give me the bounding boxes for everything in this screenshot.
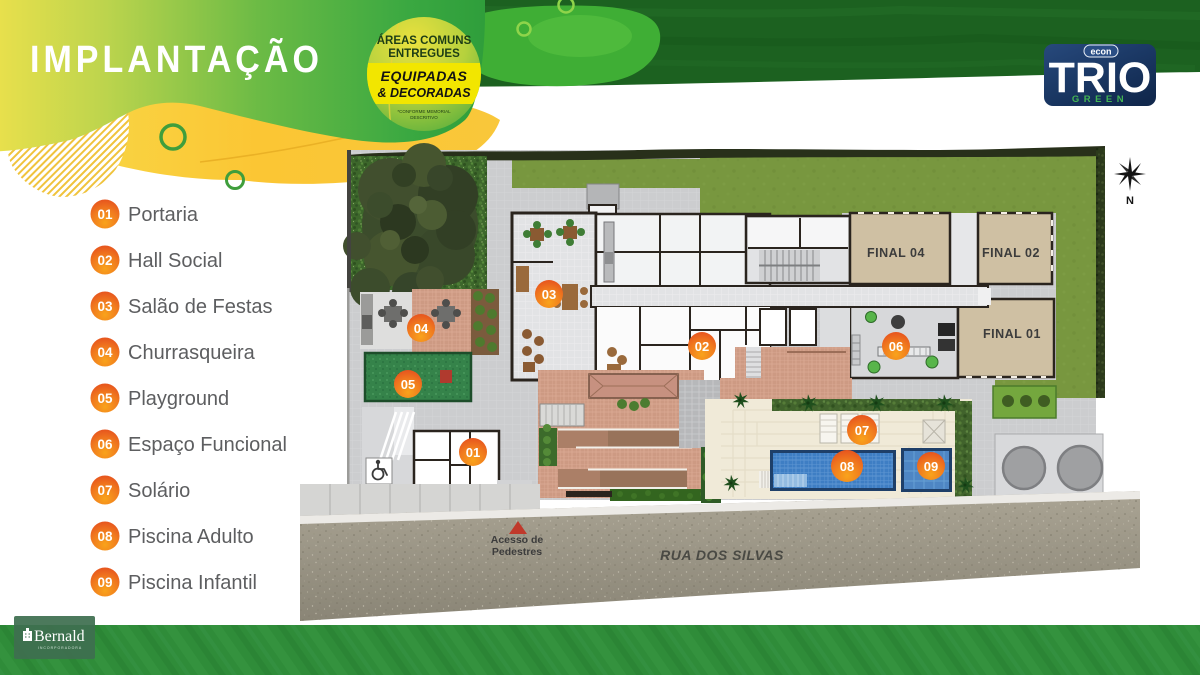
- svg-text:Piscina Infantil: Piscina Infantil: [128, 572, 257, 594]
- svg-text:04: 04: [414, 321, 429, 336]
- svg-text:03: 03: [542, 287, 556, 302]
- svg-text:09: 09: [924, 459, 938, 474]
- svg-text:05: 05: [97, 391, 113, 406]
- svg-text:Hall Social: Hall Social: [128, 250, 222, 272]
- svg-text:FINAL 02: FINAL 02: [982, 246, 1040, 260]
- svg-text:RUA DOS SILVAS: RUA DOS SILVAS: [660, 547, 784, 563]
- svg-text:& DECORADAS: & DECORADAS: [377, 86, 471, 100]
- svg-text:01: 01: [97, 207, 113, 222]
- svg-text:08: 08: [97, 529, 113, 544]
- svg-text:02: 02: [97, 253, 112, 268]
- svg-text:Playground: Playground: [128, 388, 229, 410]
- svg-text:01: 01: [466, 445, 480, 460]
- svg-text:N: N: [1126, 195, 1134, 207]
- svg-text:Solário: Solário: [128, 480, 190, 502]
- svg-text:07: 07: [97, 483, 112, 498]
- svg-text:Churrasqueira: Churrasqueira: [128, 342, 256, 364]
- svg-text:FINAL 04: FINAL 04: [867, 246, 925, 260]
- svg-text:Bernald: Bernald: [34, 628, 85, 645]
- svg-text:06: 06: [889, 339, 903, 354]
- svg-text:02: 02: [695, 339, 709, 354]
- svg-text:*CONFORME MEMORIAL: *CONFORME MEMORIAL: [397, 109, 451, 114]
- svg-text:09: 09: [97, 575, 112, 590]
- svg-text:04: 04: [97, 345, 113, 360]
- svg-text:08: 08: [840, 459, 854, 474]
- svg-text:07: 07: [855, 423, 869, 438]
- svg-text:ENTREGUES: ENTREGUES: [388, 48, 460, 60]
- svg-text:INCORPORADORA: INCORPORADORA: [38, 646, 82, 650]
- svg-text:DESCRITIVO: DESCRITIVO: [410, 115, 438, 120]
- svg-text:Portaria: Portaria: [128, 204, 199, 226]
- svg-text:EQUIPADAS: EQUIPADAS: [381, 68, 468, 84]
- svg-text:03: 03: [97, 299, 113, 314]
- svg-text:Acesso de: Acesso de: [491, 534, 544, 546]
- svg-text:Pedestres: Pedestres: [492, 546, 542, 558]
- svg-text:Salão de Festas: Salão de Festas: [128, 296, 273, 318]
- svg-text:Espaço Funcional: Espaço Funcional: [128, 434, 287, 456]
- svg-text:GREEN: GREEN: [1072, 94, 1128, 105]
- svg-text:05: 05: [401, 377, 415, 392]
- svg-text:ÁREAS COMUNS: ÁREAS COMUNS: [377, 34, 472, 47]
- svg-text:FINAL 01: FINAL 01: [983, 327, 1041, 341]
- svg-text:06: 06: [97, 437, 113, 452]
- svg-text:Piscina Adulto: Piscina Adulto: [128, 526, 254, 548]
- svg-text:IMPLANTAÇÃO: IMPLANTAÇÃO: [30, 36, 323, 80]
